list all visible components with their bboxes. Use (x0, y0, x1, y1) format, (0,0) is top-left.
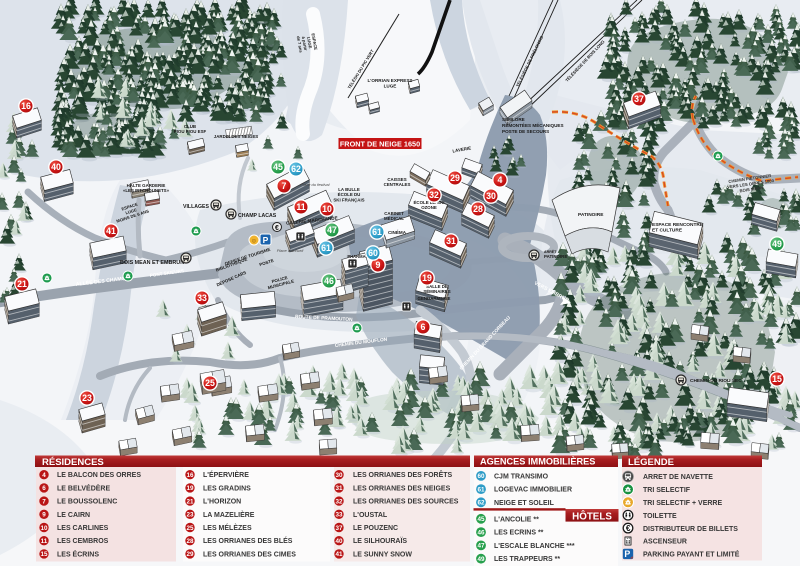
svg-text:LE SUNNY SNOW: LE SUNNY SNOW (353, 551, 412, 558)
svg-text:POSTE DE SECOURS: POSTE DE SECOURS (502, 129, 549, 134)
svg-text:LES CEMBROS: LES CEMBROS (57, 538, 109, 545)
svg-text:60: 60 (477, 473, 485, 480)
svg-text:7: 7 (42, 498, 46, 505)
svg-text:45: 45 (273, 162, 283, 172)
svg-text:HÔTELS: HÔTELS (572, 510, 612, 522)
svg-text:LE SILHOURAÏS: LE SILHOURAÏS (353, 537, 407, 545)
svg-text:LES ORRIANES DES NEIGES: LES ORRIANES DES NEIGES (353, 485, 451, 492)
svg-text:TOILETTE: TOILETTE (643, 513, 677, 520)
svg-text:LES ORRIANES DES BLÉS: LES ORRIANES DES BLÉS (203, 536, 293, 545)
svg-text:LE CAIRN: LE CAIRN (57, 512, 90, 519)
svg-text:JARDIN DES NEIGES: JARDIN DES NEIGES (214, 134, 258, 139)
svg-text:LOGEVAC IMMOBILIER: LOGEVAC IMMOBILIER (494, 487, 572, 494)
svg-text:6: 6 (42, 485, 46, 492)
svg-text:32: 32 (335, 498, 343, 505)
svg-text:€: € (275, 225, 279, 232)
svg-text:LES ECRINS **: LES ECRINS ** (494, 530, 544, 537)
svg-text:29: 29 (186, 551, 194, 558)
svg-text:PARKING PAYANT ET LIMITÉ: PARKING PAYANT ET LIMITÉ (643, 550, 740, 559)
svg-text:CJM TRANSIMO: CJM TRANSIMO (494, 473, 549, 480)
svg-text:16: 16 (21, 101, 31, 111)
svg-text:15: 15 (772, 374, 782, 384)
svg-text:€: € (626, 524, 631, 533)
svg-text:LUGE: LUGE (384, 83, 397, 88)
svg-text:LÉGENDE: LÉGENDE (628, 457, 674, 468)
svg-text:LES CARLINES: LES CARLINES (57, 525, 109, 532)
svg-text:37: 37 (335, 525, 343, 532)
svg-text:LE BALCON DES ORRES: LE BALCON DES ORRES (57, 472, 141, 479)
svg-text:AGENCES IMMOBILIÈRES: AGENCES IMMOBILIÈRES (480, 456, 595, 467)
svg-text:49: 49 (772, 239, 782, 249)
svg-text:62: 62 (477, 500, 485, 507)
svg-text:28: 28 (473, 204, 483, 214)
svg-text:LE BELVÉDÈRE: LE BELVÉDÈRE (57, 483, 110, 492)
svg-text:9: 9 (376, 260, 381, 270)
svg-text:10: 10 (40, 525, 48, 532)
svg-text:CHAMP LACAS: CHAMP LACAS (238, 213, 277, 219)
svg-text:7: 7 (282, 181, 287, 191)
svg-text:Place d'accueil: Place d'accueil (277, 248, 304, 253)
svg-text:4: 4 (498, 175, 503, 185)
svg-text:ET CULTURE: ET CULTURE (652, 228, 683, 234)
svg-text:CHEMIN DU RIOU SEC: CHEMIN DU RIOU SEC (690, 378, 742, 384)
svg-text:41: 41 (335, 551, 343, 558)
svg-text:LE BOUSSOLENC: LE BOUSSOLENC (57, 499, 117, 506)
svg-text:40: 40 (51, 162, 61, 172)
svg-text:32: 32 (429, 190, 439, 200)
svg-text:9: 9 (42, 512, 46, 519)
svg-text:CINÉMA: CINÉMA (388, 228, 407, 235)
svg-text:RÉSIDENCES: RÉSIDENCES (42, 457, 104, 468)
svg-text:SÉMINAIRES: SÉMINAIRES (423, 289, 450, 294)
svg-text:L'ORRIAN EXPRESS: L'ORRIAN EXPRESS (368, 78, 413, 83)
svg-text:PATINOIRE: PATINOIRE (544, 254, 567, 259)
svg-text:DISTRIBUTEUR DE BILLETS: DISTRIBUTEUR DE BILLETS (643, 526, 738, 533)
svg-text:CENTRALES: CENTRALES (384, 182, 411, 187)
svg-text:41: 41 (106, 226, 116, 236)
svg-text:23: 23 (82, 393, 92, 403)
svg-text:25: 25 (186, 525, 194, 532)
svg-text:L'ÉPERVIÈRE: L'ÉPERVIÈRE (203, 470, 249, 479)
svg-text:23: 23 (186, 512, 194, 519)
svg-text:33: 33 (197, 293, 207, 303)
svg-text:61: 61 (321, 243, 331, 253)
svg-text:GENDARMERIE: GENDARMERIE (418, 296, 451, 301)
svg-text:ESPACE RENCONTRE: ESPACE RENCONTRE (652, 222, 704, 228)
svg-text:62: 62 (291, 164, 301, 174)
svg-text:PATINOIRE: PATINOIRE (578, 212, 604, 218)
svg-text:28: 28 (186, 538, 194, 545)
svg-text:ARRET DE NAVETTE: ARRET DE NAVETTE (643, 474, 713, 481)
svg-text:10: 10 (322, 204, 332, 214)
svg-text:☺: ☺ (251, 239, 257, 245)
svg-text:47: 47 (327, 225, 337, 235)
svg-text:REMONTÉES MÉCANIQUES: REMONTÉES MÉCANIQUES (502, 121, 564, 128)
svg-text:LES ORRIANES DES CIMES: LES ORRIANES DES CIMES (203, 551, 296, 558)
svg-text:46: 46 (324, 276, 334, 286)
svg-text:37: 37 (634, 94, 644, 104)
svg-text:LE POUZENC: LE POUZENC (353, 525, 398, 532)
svg-text:15: 15 (40, 551, 48, 558)
svg-text:31: 31 (446, 236, 456, 246)
svg-text:61: 61 (477, 486, 485, 493)
svg-text:SEMLORE: SEMLORE (502, 117, 525, 122)
svg-text:46: 46 (477, 529, 485, 536)
svg-text:21: 21 (17, 279, 27, 289)
svg-text:49: 49 (477, 556, 485, 563)
svg-text:BOIS MEAN ET EMBRUN: BOIS MEAN ET EMBRUN (120, 260, 184, 266)
svg-text:30: 30 (335, 472, 343, 479)
svg-text:19: 19 (186, 485, 194, 492)
svg-text:45: 45 (477, 516, 485, 523)
svg-text:47: 47 (477, 543, 485, 550)
svg-text:TRI SELECTIF: TRI SELECTIF (643, 487, 691, 494)
svg-text:LES MÉLÈZES: LES MÉLÈZES (203, 523, 252, 532)
svg-text:FRONT DE NEIGE 1650: FRONT DE NEIGE 1650 (340, 139, 420, 148)
svg-text:LES ORRIANES DES SOURCES: LES ORRIANES DES SOURCES (353, 499, 459, 506)
svg-text:LES ORRIANES DES FORÊTS: LES ORRIANES DES FORÊTS (353, 470, 453, 479)
svg-text:LES ÉCRINS: LES ÉCRINS (57, 549, 99, 558)
svg-text:60: 60 (368, 248, 378, 258)
svg-text:VILLAGES: VILLAGES (183, 204, 209, 210)
svg-text:30: 30 (486, 191, 496, 201)
svg-text:«LES PITCHOUNETS»: «LES PITCHOUNETS» (123, 188, 170, 193)
svg-text:16: 16 (186, 472, 194, 479)
svg-text:25: 25 (205, 378, 215, 388)
svg-text:40: 40 (335, 538, 343, 545)
svg-text:TRI SELECTIF + VERRE: TRI SELECTIF + VERRE (643, 500, 722, 507)
svg-text:19: 19 (422, 273, 432, 283)
svg-text:PIOU PIOU ESF: PIOU PIOU ESF (174, 129, 207, 134)
svg-text:Place du festival: Place du festival (300, 182, 329, 187)
svg-text:L'OUSTAL: L'OUSTAL (353, 512, 388, 519)
svg-text:LES TRAPPEURS **: LES TRAPPEURS ** (494, 556, 560, 563)
svg-text:L'ANCOLIE **: L'ANCOLIE ** (494, 516, 539, 523)
svg-text:P: P (263, 235, 269, 245)
svg-text:MÉDICAL: MÉDICAL (384, 216, 404, 221)
svg-text:29: 29 (450, 173, 460, 183)
svg-text:NEIGE ET SOLEIL: NEIGE ET SOLEIL (494, 500, 555, 507)
svg-text:61: 61 (372, 227, 382, 237)
svg-text:21: 21 (186, 498, 194, 505)
svg-text:OZONE: OZONE (421, 205, 437, 210)
svg-text:33: 33 (335, 512, 343, 519)
svg-text:LA MAZELIÈRE: LA MAZELIÈRE (203, 510, 255, 519)
svg-text:LES GRADINS: LES GRADINS (203, 485, 251, 492)
svg-text:ASCENSEUR: ASCENSEUR (643, 539, 687, 546)
svg-text:11: 11 (41, 538, 48, 545)
svg-text:P: P (624, 549, 630, 559)
svg-text:11: 11 (296, 202, 305, 212)
svg-text:31: 31 (335, 485, 343, 492)
svg-text:L'HORIZON: L'HORIZON (203, 499, 241, 506)
svg-text:SKI FRANÇAIS: SKI FRANÇAIS (333, 197, 364, 202)
svg-text:L'ESCALE BLANCHE ***: L'ESCALE BLANCHE *** (494, 543, 575, 550)
svg-text:4: 4 (42, 472, 46, 479)
svg-text:6: 6 (421, 322, 426, 332)
